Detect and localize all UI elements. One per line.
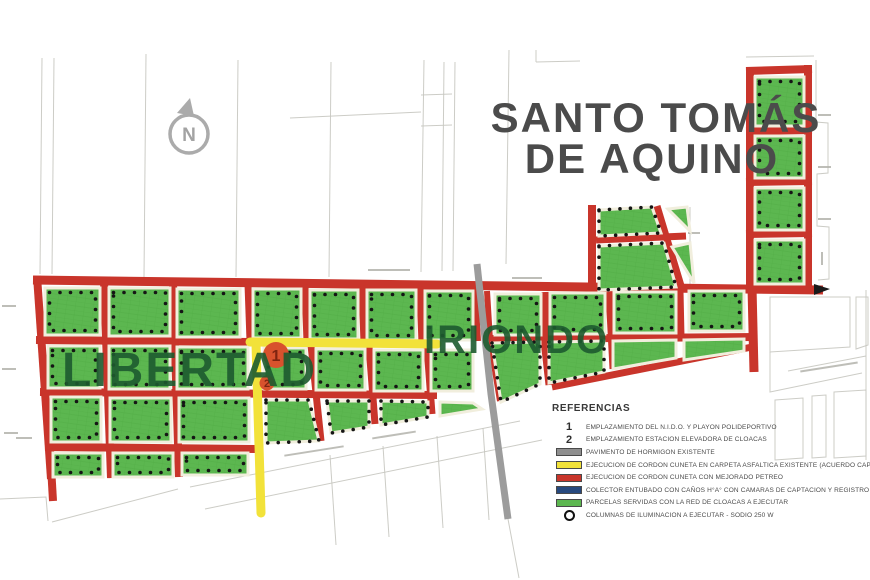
district-label-libertad: LIBERTAD (62, 344, 317, 397)
legend-item-nido: 1 EMPLAZAMIENTO DEL N.I.D.O. Y PLAYON PO… (552, 421, 870, 434)
legend-number-1: 1 (566, 421, 572, 433)
city-block (668, 207, 690, 231)
legend-number-2: 2 (566, 434, 572, 446)
city-block (374, 350, 423, 391)
legend-item-cuneta-asfaltica: EJECUCION DE CORDON CUNETA EN CARPETA AS… (552, 459, 870, 472)
plan-map: 1 2 N SANTO TOMÁS DE AQUINO LIBERTAD IRI… (0, 0, 870, 580)
legend-swatch-gray (556, 448, 582, 456)
legend-swatch-yellow (556, 461, 582, 469)
city-block (614, 292, 676, 333)
city-block (266, 400, 319, 443)
city-block (381, 401, 428, 425)
city-block (51, 397, 101, 442)
district-label-iriondo: IRIONDO (424, 318, 609, 362)
city-block (179, 398, 249, 442)
city-block (599, 207, 661, 236)
city-block (599, 243, 676, 290)
legend-panel: REFERENCIAS 1 EMPLAZAMIENTO DEL N.I.D.O.… (552, 403, 870, 522)
city-block (440, 402, 482, 416)
city-block (177, 289, 240, 337)
title-de-aquino: DE AQUINO (525, 135, 779, 182)
city-block (755, 188, 804, 230)
legend-label: EMPLAZAMIENTO ESTACION ELEVADORA DE CLOA… (586, 436, 767, 443)
city-block (310, 290, 358, 339)
city-block (253, 289, 301, 338)
north-arrow-icon: N (170, 98, 208, 153)
legend-title: REFERENCIAS (552, 403, 870, 414)
legend-label: PAVIMENTO DE HORMIGON EXISTENTE (586, 449, 715, 456)
legend-label: EJECUCION DE CORDON CUNETA CON MEJORADO … (586, 474, 783, 481)
city-block (367, 290, 416, 340)
legend-swatch-green (556, 499, 582, 507)
legend-label: COLECTOR ENTUBADO CON CAÑOS H°A° CON CAM… (586, 487, 869, 494)
legend-lighting-column-icon (564, 510, 575, 521)
legend-label: EJECUCION DE CORDON CUNETA EN CARPETA AS… (586, 462, 870, 469)
legend-item-estacion: 2 EMPLAZAMIENTO ESTACION ELEVADORA DE CL… (552, 434, 870, 447)
legend-item-columnas: COLUMNAS DE ILUMINACION A EJECUTAR - SOD… (552, 509, 870, 522)
legend-label: PARCELAS SERVIDAS CON LA RED DE CLOACAS … (586, 499, 788, 506)
legend-item-parcelas: PARCELAS SERVIDAS CON LA RED DE CLOACAS … (552, 497, 870, 510)
title-santo-tomas: SANTO TOMÁS (491, 94, 822, 141)
city-block (316, 349, 365, 390)
city-block (110, 398, 171, 442)
legend-swatch-navy (556, 486, 582, 494)
legend-label: COLUMNAS DE ILUMINACION A EJECUTAR - SOD… (586, 512, 774, 519)
legend-item-colector: COLECTOR ENTUBADO CON CAÑOS H°A° CON CAM… (552, 484, 870, 497)
city-block (45, 288, 100, 335)
city-block (755, 240, 804, 284)
legend-swatch-red (556, 474, 582, 482)
legend-label: EMPLAZAMIENTO DEL N.I.D.O. Y PLAYON POLI… (586, 424, 777, 431)
legend-item-cuneta-petreo: EJECUCION DE CORDON CUNETA CON MEJORADO … (552, 471, 870, 484)
city-block (684, 339, 744, 360)
north-label: N (182, 125, 196, 146)
legend-item-pavimento: PAVIMENTO DE HORMIGON EXISTENTE (552, 446, 870, 459)
city-block (109, 288, 170, 336)
city-block (113, 453, 173, 477)
